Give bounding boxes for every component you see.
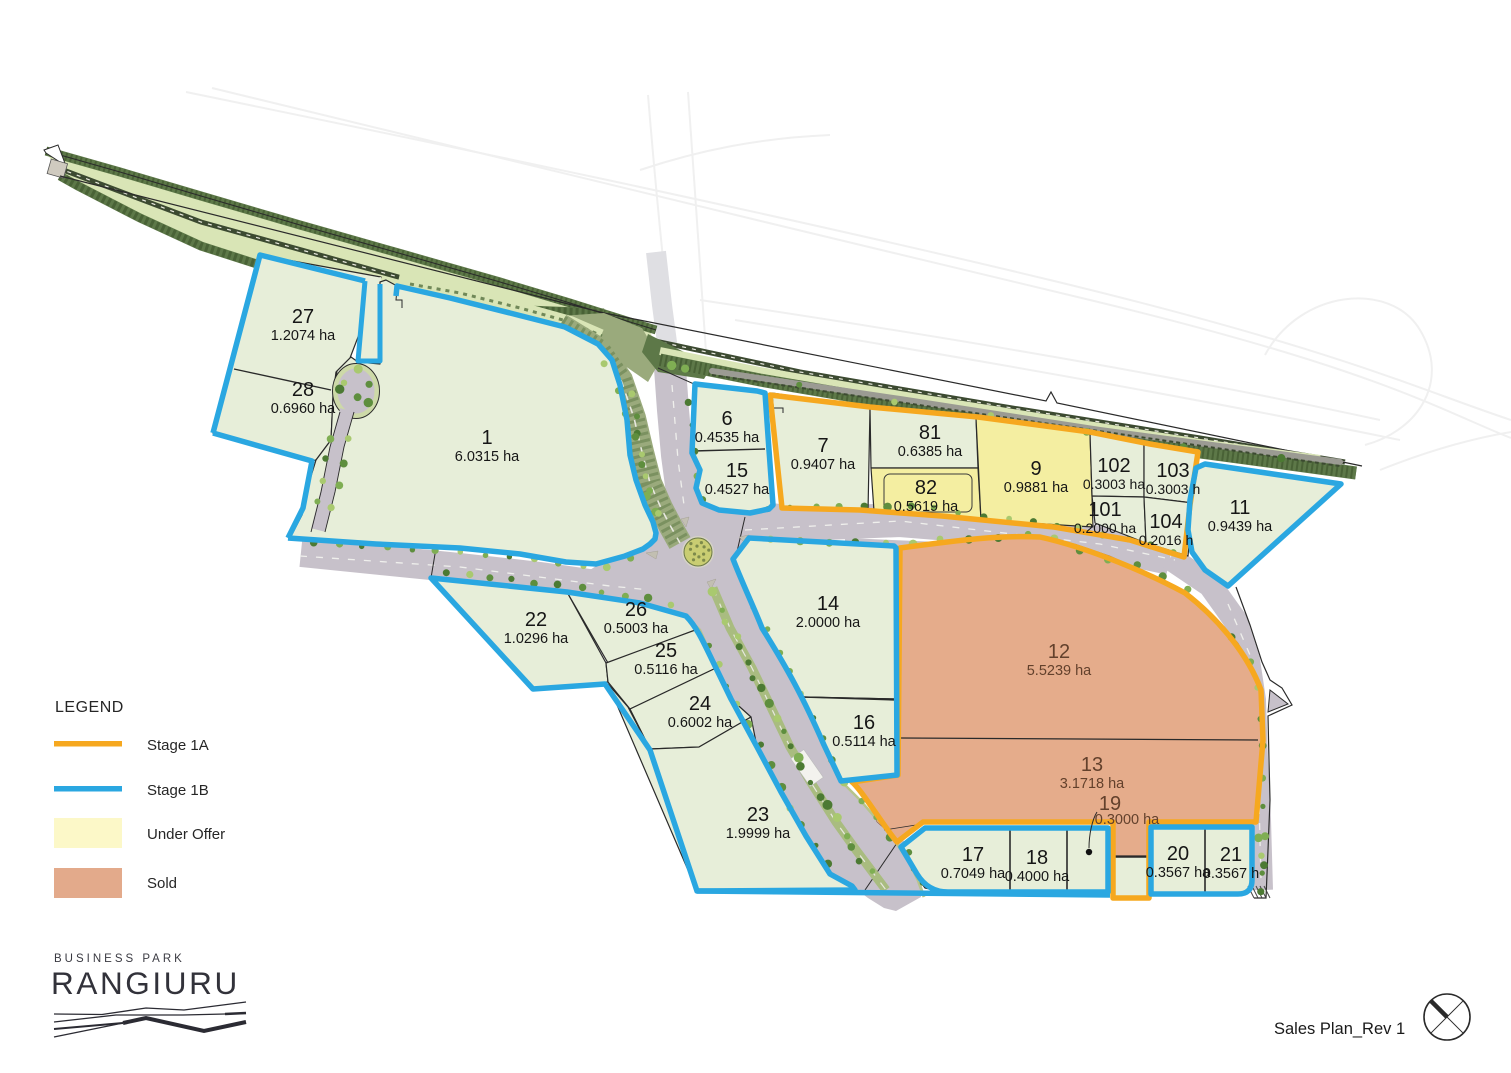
svg-text:6.0315 ha: 6.0315 ha — [455, 449, 520, 465]
svg-text:0.4535 ha: 0.4535 ha — [695, 430, 760, 446]
svg-text:0.3003 h: 0.3003 h — [1146, 481, 1201, 497]
svg-text:RANGIURU: RANGIURU — [51, 965, 240, 1001]
svg-text:0.5114 ha: 0.5114 ha — [832, 734, 896, 750]
svg-text:7: 7 — [817, 435, 828, 457]
svg-text:Stage 1B: Stage 1B — [147, 782, 209, 799]
svg-text:0.9881 ha: 0.9881 ha — [1004, 480, 1069, 496]
svg-text:0.7049 ha: 0.7049 ha — [941, 866, 1006, 882]
svg-text:26: 26 — [625, 599, 647, 621]
svg-text:81: 81 — [919, 422, 941, 444]
svg-text:Stage 1A: Stage 1A — [147, 737, 209, 754]
svg-text:0.2016 h: 0.2016 h — [1139, 532, 1194, 548]
svg-text:1: 1 — [481, 427, 492, 449]
svg-text:13: 13 — [1081, 754, 1103, 776]
svg-text:103: 103 — [1156, 460, 1189, 482]
svg-text:24: 24 — [689, 693, 711, 715]
svg-text:16: 16 — [853, 712, 875, 734]
svg-text:9: 9 — [1030, 458, 1041, 480]
svg-text:0.3000 ha: 0.3000 ha — [1095, 812, 1160, 828]
svg-text:0.3567 ha: 0.3567 ha — [1146, 865, 1211, 881]
svg-text:0.5003 ha: 0.5003 ha — [604, 621, 669, 637]
svg-text:1.9999 ha: 1.9999 ha — [726, 826, 791, 842]
svg-text:0.6385 ha: 0.6385 ha — [898, 444, 963, 460]
svg-text:21: 21 — [1220, 844, 1242, 866]
svg-text:0.9439 ha: 0.9439 ha — [1208, 519, 1273, 535]
svg-text:18: 18 — [1026, 847, 1048, 869]
svg-text:6: 6 — [721, 408, 732, 430]
svg-text:23: 23 — [747, 804, 769, 826]
svg-text:22: 22 — [525, 609, 547, 631]
svg-text:Under Offer: Under Offer — [147, 826, 225, 843]
svg-text:1.0296 ha: 1.0296 ha — [504, 631, 569, 647]
svg-text:101: 101 — [1088, 499, 1121, 521]
svg-text:Sales Plan_Rev 1: Sales Plan_Rev 1 — [1274, 1020, 1405, 1038]
svg-text:20: 20 — [1167, 843, 1189, 865]
svg-text:0.6960 ha: 0.6960 ha — [271, 401, 336, 417]
svg-text:2.0000 ha: 2.0000 ha — [796, 615, 861, 631]
svg-text:5.5239 ha: 5.5239 ha — [1027, 663, 1092, 679]
svg-text:27: 27 — [292, 306, 314, 328]
svg-text:0.2000 ha: 0.2000 ha — [1074, 520, 1136, 536]
svg-text:104: 104 — [1149, 511, 1182, 533]
svg-text:0.4000 ha: 0.4000 ha — [1005, 869, 1070, 885]
svg-text:28: 28 — [292, 379, 314, 401]
svg-text:1.2074 ha: 1.2074 ha — [271, 328, 336, 344]
svg-text:82: 82 — [915, 477, 937, 499]
svg-text:0.3567 h: 0.3567 h — [1203, 866, 1259, 882]
svg-text:11: 11 — [1230, 497, 1251, 519]
svg-text:LEGEND: LEGEND — [55, 699, 124, 716]
svg-text:15: 15 — [726, 460, 748, 482]
svg-text:0.4527 ha: 0.4527 ha — [705, 482, 770, 498]
svg-text:BUSINESS PARK: BUSINESS PARK — [54, 953, 185, 965]
svg-text:0.6002 ha: 0.6002 ha — [668, 715, 733, 731]
svg-text:17: 17 — [962, 844, 984, 866]
svg-text:0.9407 ha: 0.9407 ha — [791, 457, 856, 473]
svg-text:0.3003 ha: 0.3003 ha — [1083, 476, 1145, 492]
svg-text:102: 102 — [1097, 455, 1130, 477]
svg-text:0.5619 ha: 0.5619 ha — [894, 499, 959, 515]
svg-text:25: 25 — [655, 640, 677, 662]
svg-text:Sold: Sold — [147, 875, 177, 892]
svg-text:3.1718 ha: 3.1718 ha — [1060, 776, 1125, 792]
svg-text:0.5116 ha: 0.5116 ha — [634, 662, 698, 678]
svg-text:12: 12 — [1048, 641, 1070, 663]
svg-text:14: 14 — [817, 593, 839, 615]
